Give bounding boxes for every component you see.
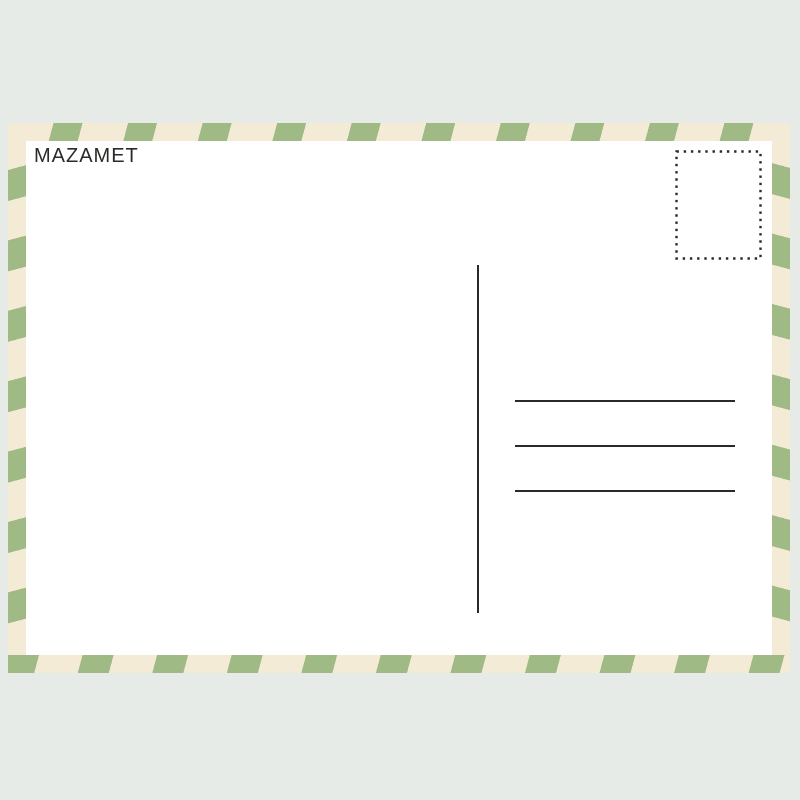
address-line bbox=[515, 490, 735, 492]
address-lines bbox=[515, 123, 735, 673]
postcard-back: MAZAMET bbox=[8, 123, 790, 673]
striped-border-right bbox=[772, 141, 790, 655]
striped-border-left bbox=[8, 141, 26, 655]
address-line bbox=[515, 445, 735, 447]
location-title: MAZAMET bbox=[34, 146, 139, 166]
product-image-background: MAZAMET bbox=[0, 0, 800, 800]
message-address-divider-line bbox=[477, 265, 479, 613]
address-line bbox=[515, 400, 735, 402]
